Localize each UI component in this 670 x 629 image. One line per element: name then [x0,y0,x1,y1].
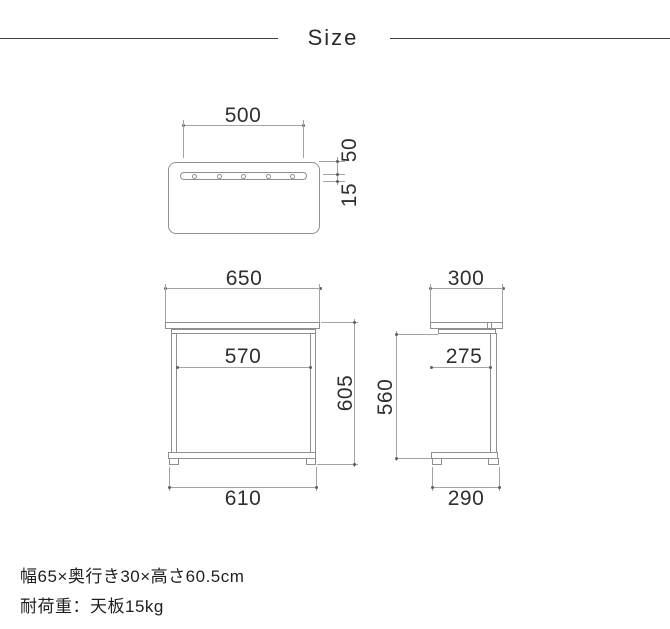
slot-hole [192,174,197,179]
title-rule-right [390,38,670,39]
side-underframe [438,329,496,334]
slot-hole [241,174,246,179]
dim-endpoint [395,457,398,460]
dim-endpoint [430,366,433,369]
dim-endpoint [309,366,312,369]
dim-endpoint [336,173,339,176]
front-left-foot [169,458,179,465]
dim-endpoint [353,463,356,466]
dim-label-base-width: 610 [203,489,283,509]
dim-line-top-width [165,288,320,289]
dim-label-top-width: 650 [204,269,284,289]
dim-endpoint [489,366,492,369]
dim-endpoint [395,333,398,336]
dim-line-top-depth [430,288,503,289]
dim-endpoint [176,366,179,369]
extension-line [397,458,431,459]
front-apron [171,329,316,334]
dim-label-base-depth: 290 [426,489,506,509]
extension-line [317,464,358,465]
front-right-leg [310,333,316,453]
dim-label-inner-width: 570 [203,347,283,367]
size-diagram: Size 500 50 15 650 [0,0,670,629]
dim-line-inner-width [177,367,310,368]
slot-hole [266,174,271,179]
front-bottom-rail [168,452,316,459]
front-left-leg [171,333,177,453]
page-title: Size [273,26,393,50]
extension-line [430,284,431,322]
side-back-foot [488,458,499,465]
extension-line [303,120,304,158]
overall-size-text: 幅65×奥行き30×高さ60.5cm [20,562,244,587]
dim-label-top-depth: 300 [426,269,506,289]
extension-line [319,284,320,322]
extension-line [183,120,184,158]
dim-endpoint [353,321,356,324]
dim-endpoint [168,486,171,489]
dim-line-slot-width [183,125,303,126]
dim-label-overall-height: 605 [336,353,356,433]
dim-line-inner-depth [431,367,490,368]
front-tabletop [165,322,320,329]
extension-line [165,284,166,322]
extension-line [502,284,503,322]
title-rule-left [0,38,278,39]
extension-line [397,334,438,335]
dim-label-inner-depth: 275 [424,347,504,367]
slot-hole [290,174,295,179]
side-tabletop [430,322,503,329]
side-front-foot [432,458,442,465]
dim-label-inner-height: 560 [376,357,396,437]
dim-endpoint [315,486,318,489]
slot-hole [217,174,222,179]
front-right-foot [306,458,316,465]
side-slot-section [487,323,492,328]
dim-label-slot-width: 500 [203,106,283,126]
dim-label-slot-depth: 15 [340,155,360,235]
load-capacity-text: 耐荷重：天板15kg [20,592,164,617]
